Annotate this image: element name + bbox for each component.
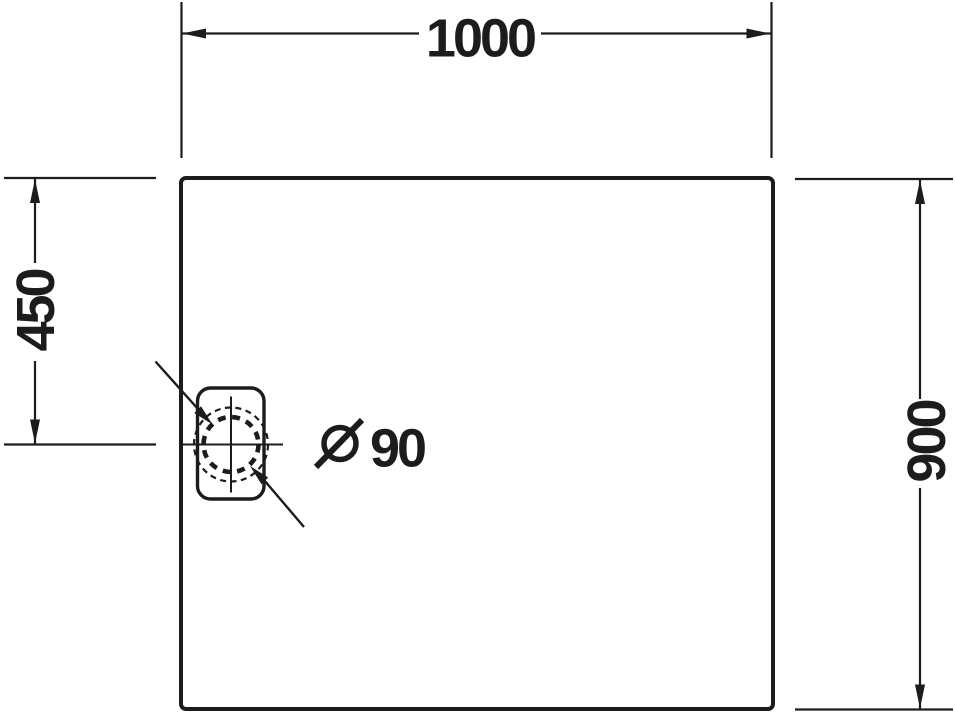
drain-leader-line-upper	[156, 362, 199, 410]
width-dimension-label: 1000	[426, 9, 535, 69]
drain-leader-line-lower	[264, 480, 304, 527]
shower-tray-technical-drawing: 1000 450 900	[0, 0, 955, 717]
depth-arrowhead-bottom	[915, 685, 925, 709]
dimension-drain-offset: 450	[4, 178, 156, 445]
drain-offset-arrowhead-top	[30, 179, 40, 203]
width-arrowhead-right	[747, 29, 771, 39]
drain-diameter-label: 90	[316, 419, 425, 479]
diameter-symbol-icon	[316, 420, 362, 467]
drain-offset-arrowhead-bottom	[30, 420, 40, 444]
technical-drawing-canvas: 1000 450 900	[0, 0, 955, 717]
depth-dimension-label: 900	[897, 400, 955, 482]
depth-arrowhead-top	[915, 180, 925, 204]
drain-diameter-value: 90	[370, 419, 425, 479]
drain-offset-dimension-label: 450	[6, 269, 66, 351]
dimension-width: 1000	[182, 2, 772, 158]
drain-assembly	[156, 362, 305, 528]
dimension-depth: 900	[795, 179, 955, 710]
width-arrowhead-left	[182, 29, 206, 39]
